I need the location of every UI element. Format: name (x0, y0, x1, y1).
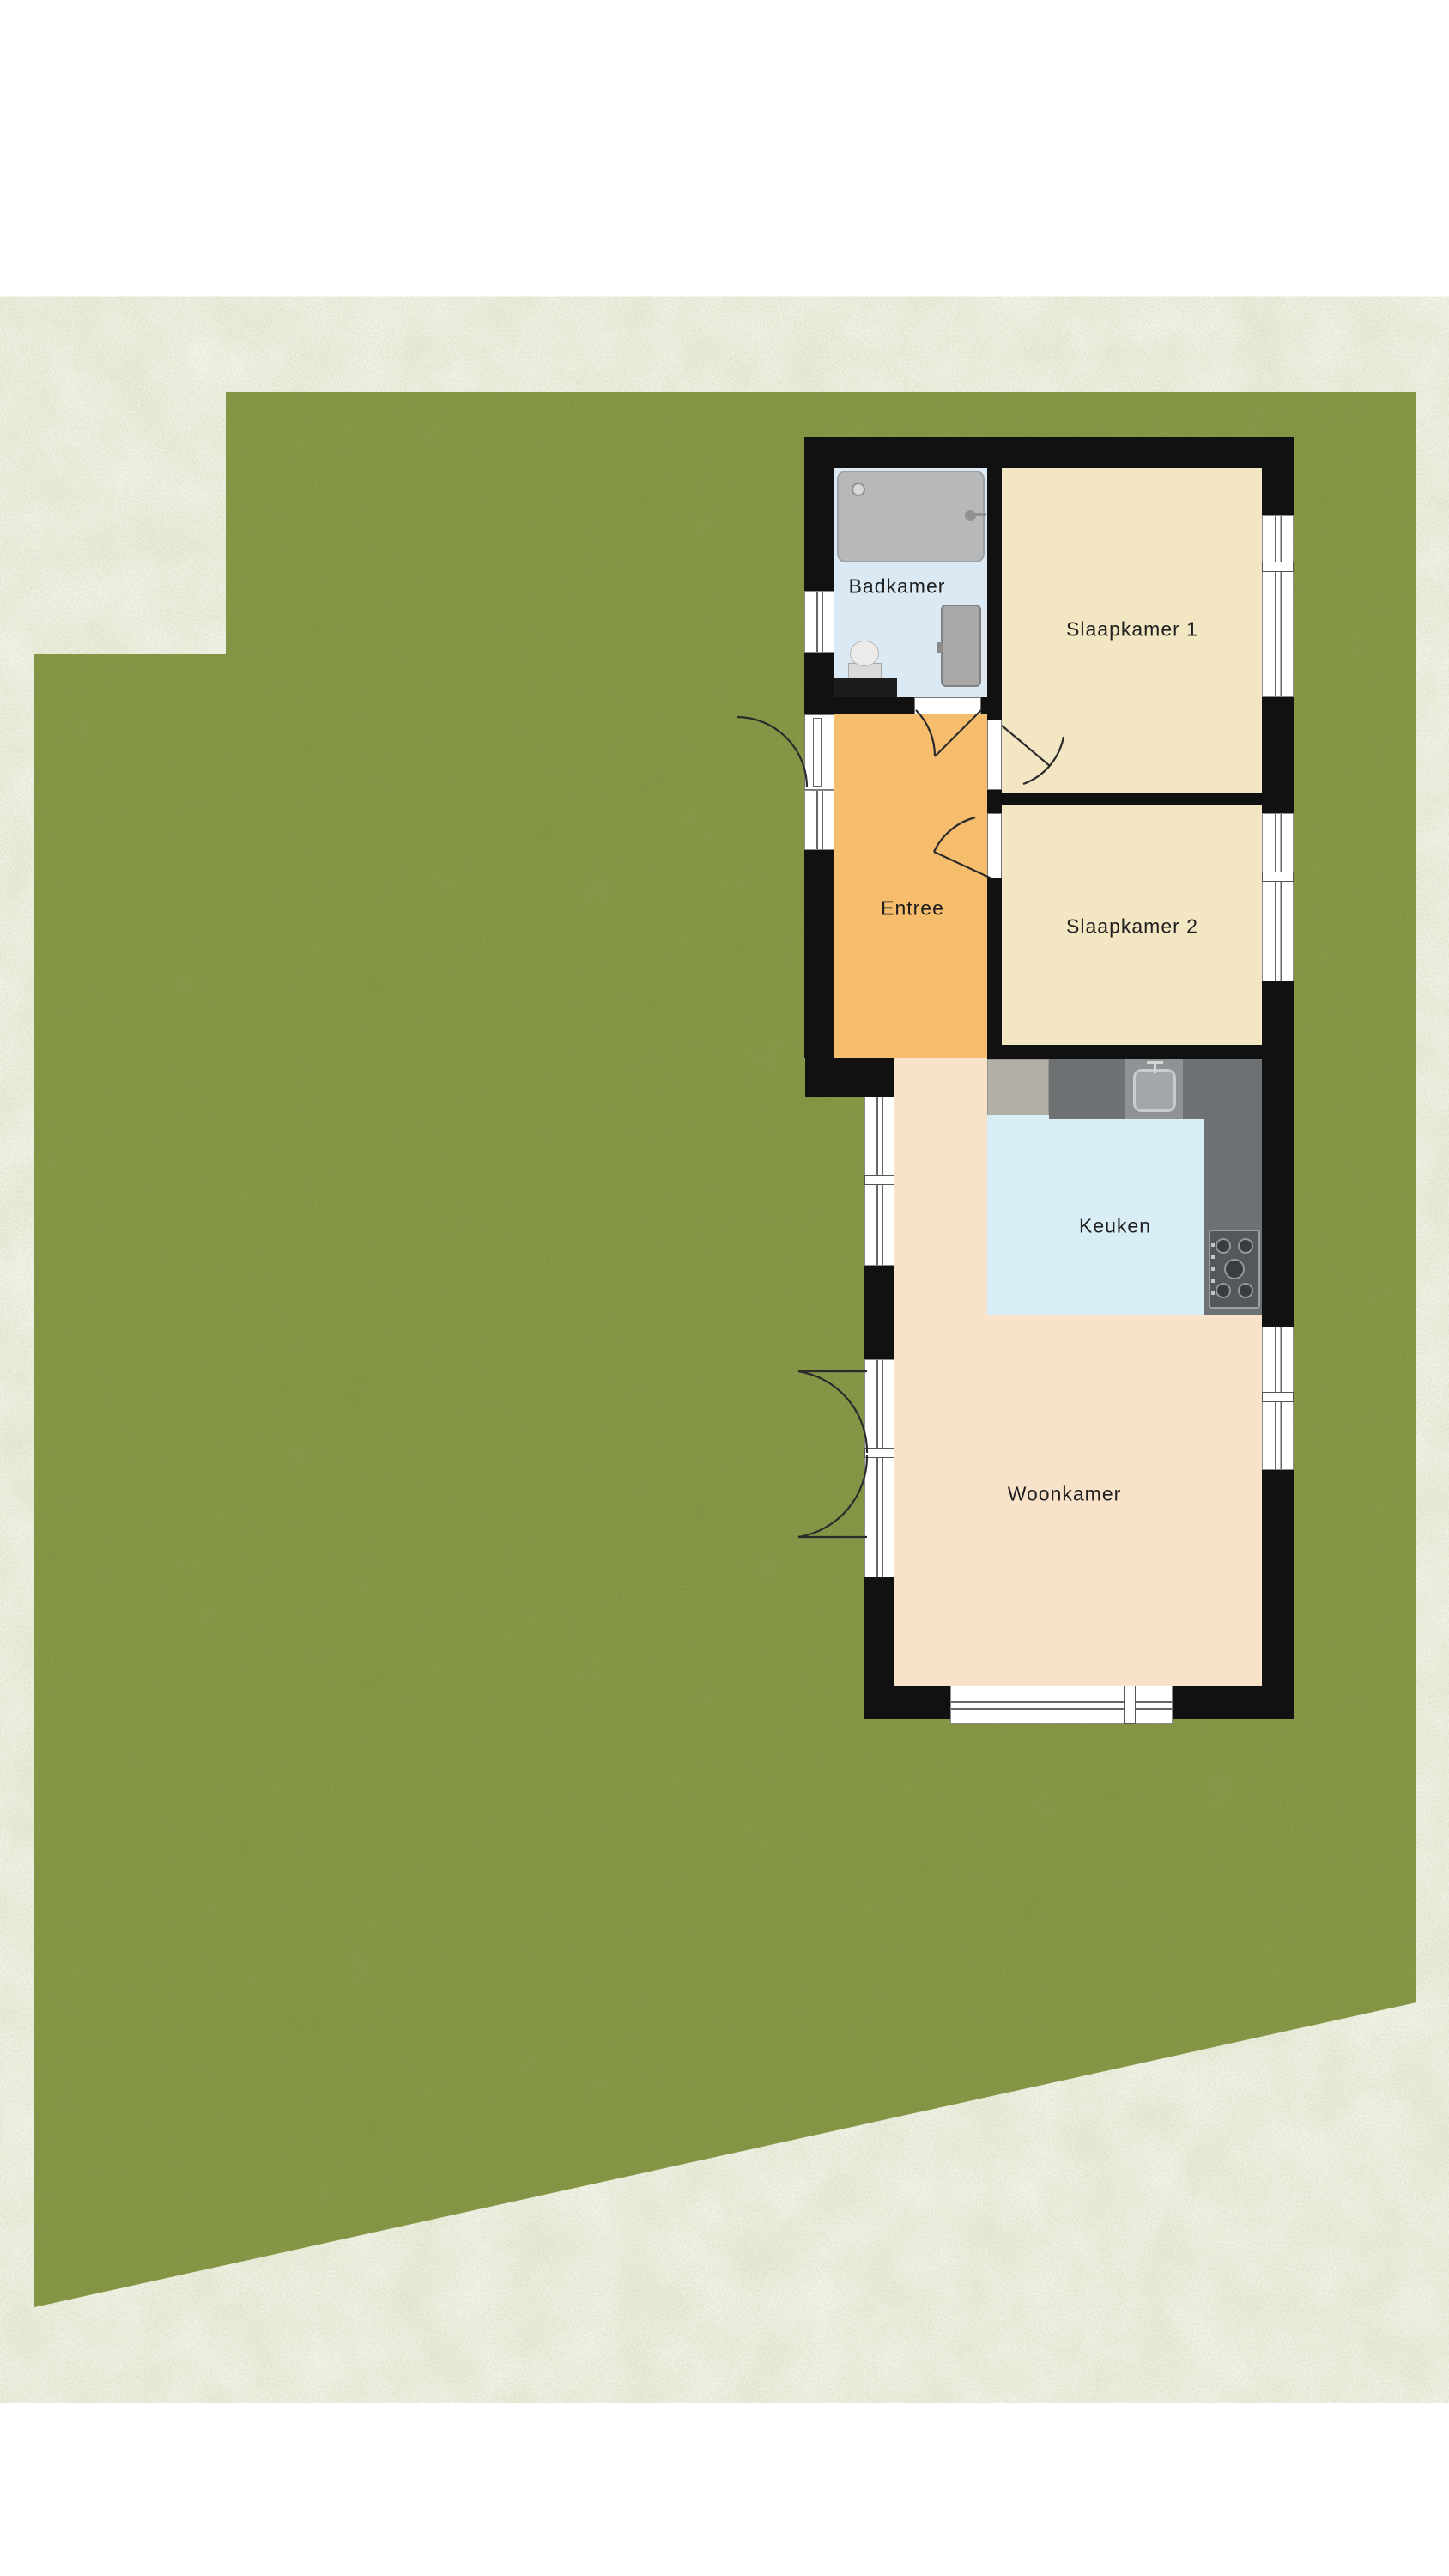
shower-hose-icon (974, 513, 986, 516)
wall-divider-entree-kitchen (987, 878, 1002, 1059)
room-entree (834, 714, 989, 1058)
room-label-woonkamer: Woonkamer (1008, 1483, 1122, 1506)
wall-divider-stub-top (987, 697, 1002, 720)
room-label-slaapkamer1: Slaapkamer 1 (1066, 618, 1198, 641)
front-door-leaf (813, 718, 822, 787)
room-label-slaapkamer2: Slaapkamer 2 (1066, 915, 1198, 939)
window-woonkamer-bottom (950, 1686, 1173, 1724)
wall-divider-stub-mid (987, 790, 1002, 813)
bedroom1-doorway (987, 720, 1002, 790)
bathroom-door-handle (937, 642, 943, 653)
window-mullion (1262, 562, 1294, 572)
toilet (850, 641, 879, 666)
room-label-entree: Entree (881, 897, 944, 920)
room-label-keuken: Keuken (1079, 1215, 1151, 1238)
window-bedroom2 (1262, 813, 1294, 981)
french-doors-frame (864, 1359, 894, 1577)
window-mullion (1262, 1392, 1294, 1402)
hob-burner (1216, 1283, 1231, 1298)
floorplan-page: Badkamer Slaapkamer 1 Slaapkamer 2 Entre… (0, 0, 1449, 2576)
window-mullion (864, 1448, 894, 1458)
wall-divider-bathroom-bedroom1 (987, 468, 1002, 697)
wall-bedroom1-bedroom2 (1002, 793, 1262, 805)
shower-drain-icon (852, 483, 865, 496)
wall-top (804, 437, 1294, 468)
hob-burner (1238, 1283, 1253, 1298)
bathroom-vanity (834, 678, 897, 697)
window-mullion (1124, 1686, 1136, 1724)
kitchen-sink (1133, 1069, 1176, 1112)
bedroom2-doorway (987, 813, 1002, 878)
wall-bedroom2-kitchen (1002, 1045, 1262, 1059)
window-mullion (864, 1175, 894, 1185)
front-door-sidelight (804, 790, 834, 850)
window-badkamer (804, 591, 834, 653)
hob-burner (1216, 1238, 1231, 1254)
room-label-badkamer: Badkamer (849, 575, 946, 598)
bathroom-door-leaf (941, 605, 981, 687)
window-bedroom1 (1262, 515, 1294, 697)
hob-knobs (1211, 1243, 1215, 1295)
badkamer-doorway (914, 697, 981, 714)
hob-burner (1224, 1259, 1245, 1279)
wall-entree-jut (805, 1058, 894, 1097)
hob-burner (1238, 1238, 1253, 1254)
faucet-handle-icon (1147, 1061, 1163, 1064)
kitchen-appliance (987, 1059, 1049, 1115)
window-mullion (1262, 872, 1294, 882)
